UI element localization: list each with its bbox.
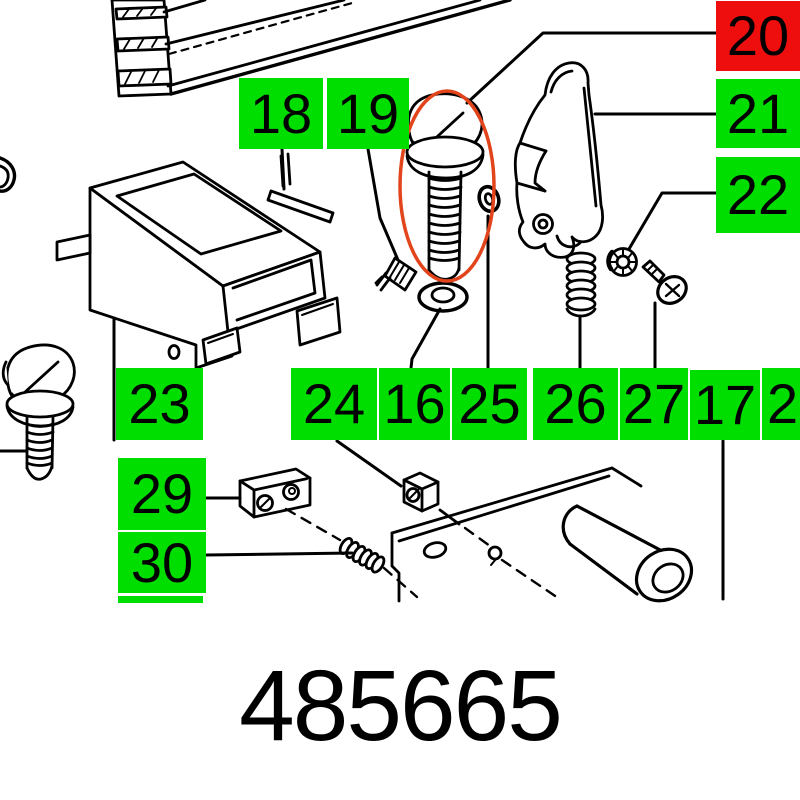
part-label-30[interactable]: 30 [118,532,206,593]
part-label-17-text: 17 [694,377,756,433]
part-label-22[interactable]: 22 [716,157,800,233]
strip-drawing [268,191,333,222]
part-label-18[interactable]: 18 [239,78,323,149]
part-label-29[interactable]: 29 [118,458,206,530]
part-label-16[interactable]: 16 [379,368,450,440]
part-label-30-text: 30 [131,535,193,591]
part-label-27-text: 27 [623,376,685,432]
housing-drawing [57,162,340,368]
part-number: 485665 [0,656,800,756]
spring26-drawing [567,253,595,316]
part-label-21[interactable]: 21 [716,79,800,148]
part-label-22-text: 22 [727,167,789,223]
part-label-19[interactable]: 19 [327,78,409,149]
cropped-part-drawing [0,158,14,191]
part-label-24[interactable]: 24 [291,368,377,440]
part-label-25-text: 25 [458,376,520,432]
screw19-drawing [376,258,416,290]
part-label-24-text: 24 [303,376,365,432]
part-label-27[interactable]: 27 [620,368,688,440]
part-label-26-text: 26 [544,376,606,432]
bracket-drawing [515,63,602,258]
parts-diagram: 18 19 20 21 22 23 24 16 25 26 27 17 28 2… [0,0,800,800]
part-label-20-text: 20 [727,8,789,64]
part-label-25[interactable]: 25 [452,368,527,440]
part-label-21-text: 21 [727,86,789,142]
part-label-23-text: 23 [128,376,190,432]
part-label-17[interactable]: 17 [690,370,760,440]
block29-drawing [240,469,310,517]
part-label-cropped [118,596,203,603]
part-label-26[interactable]: 26 [533,368,618,440]
part-label-20[interactable]: 20 [716,1,800,71]
part-label-23[interactable]: 23 [116,368,203,440]
washer16-drawing [419,283,467,311]
part-label-16-text: 16 [383,376,445,432]
part-label-28-text: 28 [767,376,800,432]
part-label-28[interactable]: 28 [762,368,800,440]
part-label-18-text: 18 [250,86,312,142]
part-label-29-text: 29 [131,466,193,522]
screw27-drawing [643,261,691,309]
left-knob-drawing [3,345,74,479]
nut24-drawing [404,473,438,511]
washer22-drawing [608,249,636,276]
ring25-drawing [476,184,502,214]
part-label-19-text: 19 [337,86,399,142]
